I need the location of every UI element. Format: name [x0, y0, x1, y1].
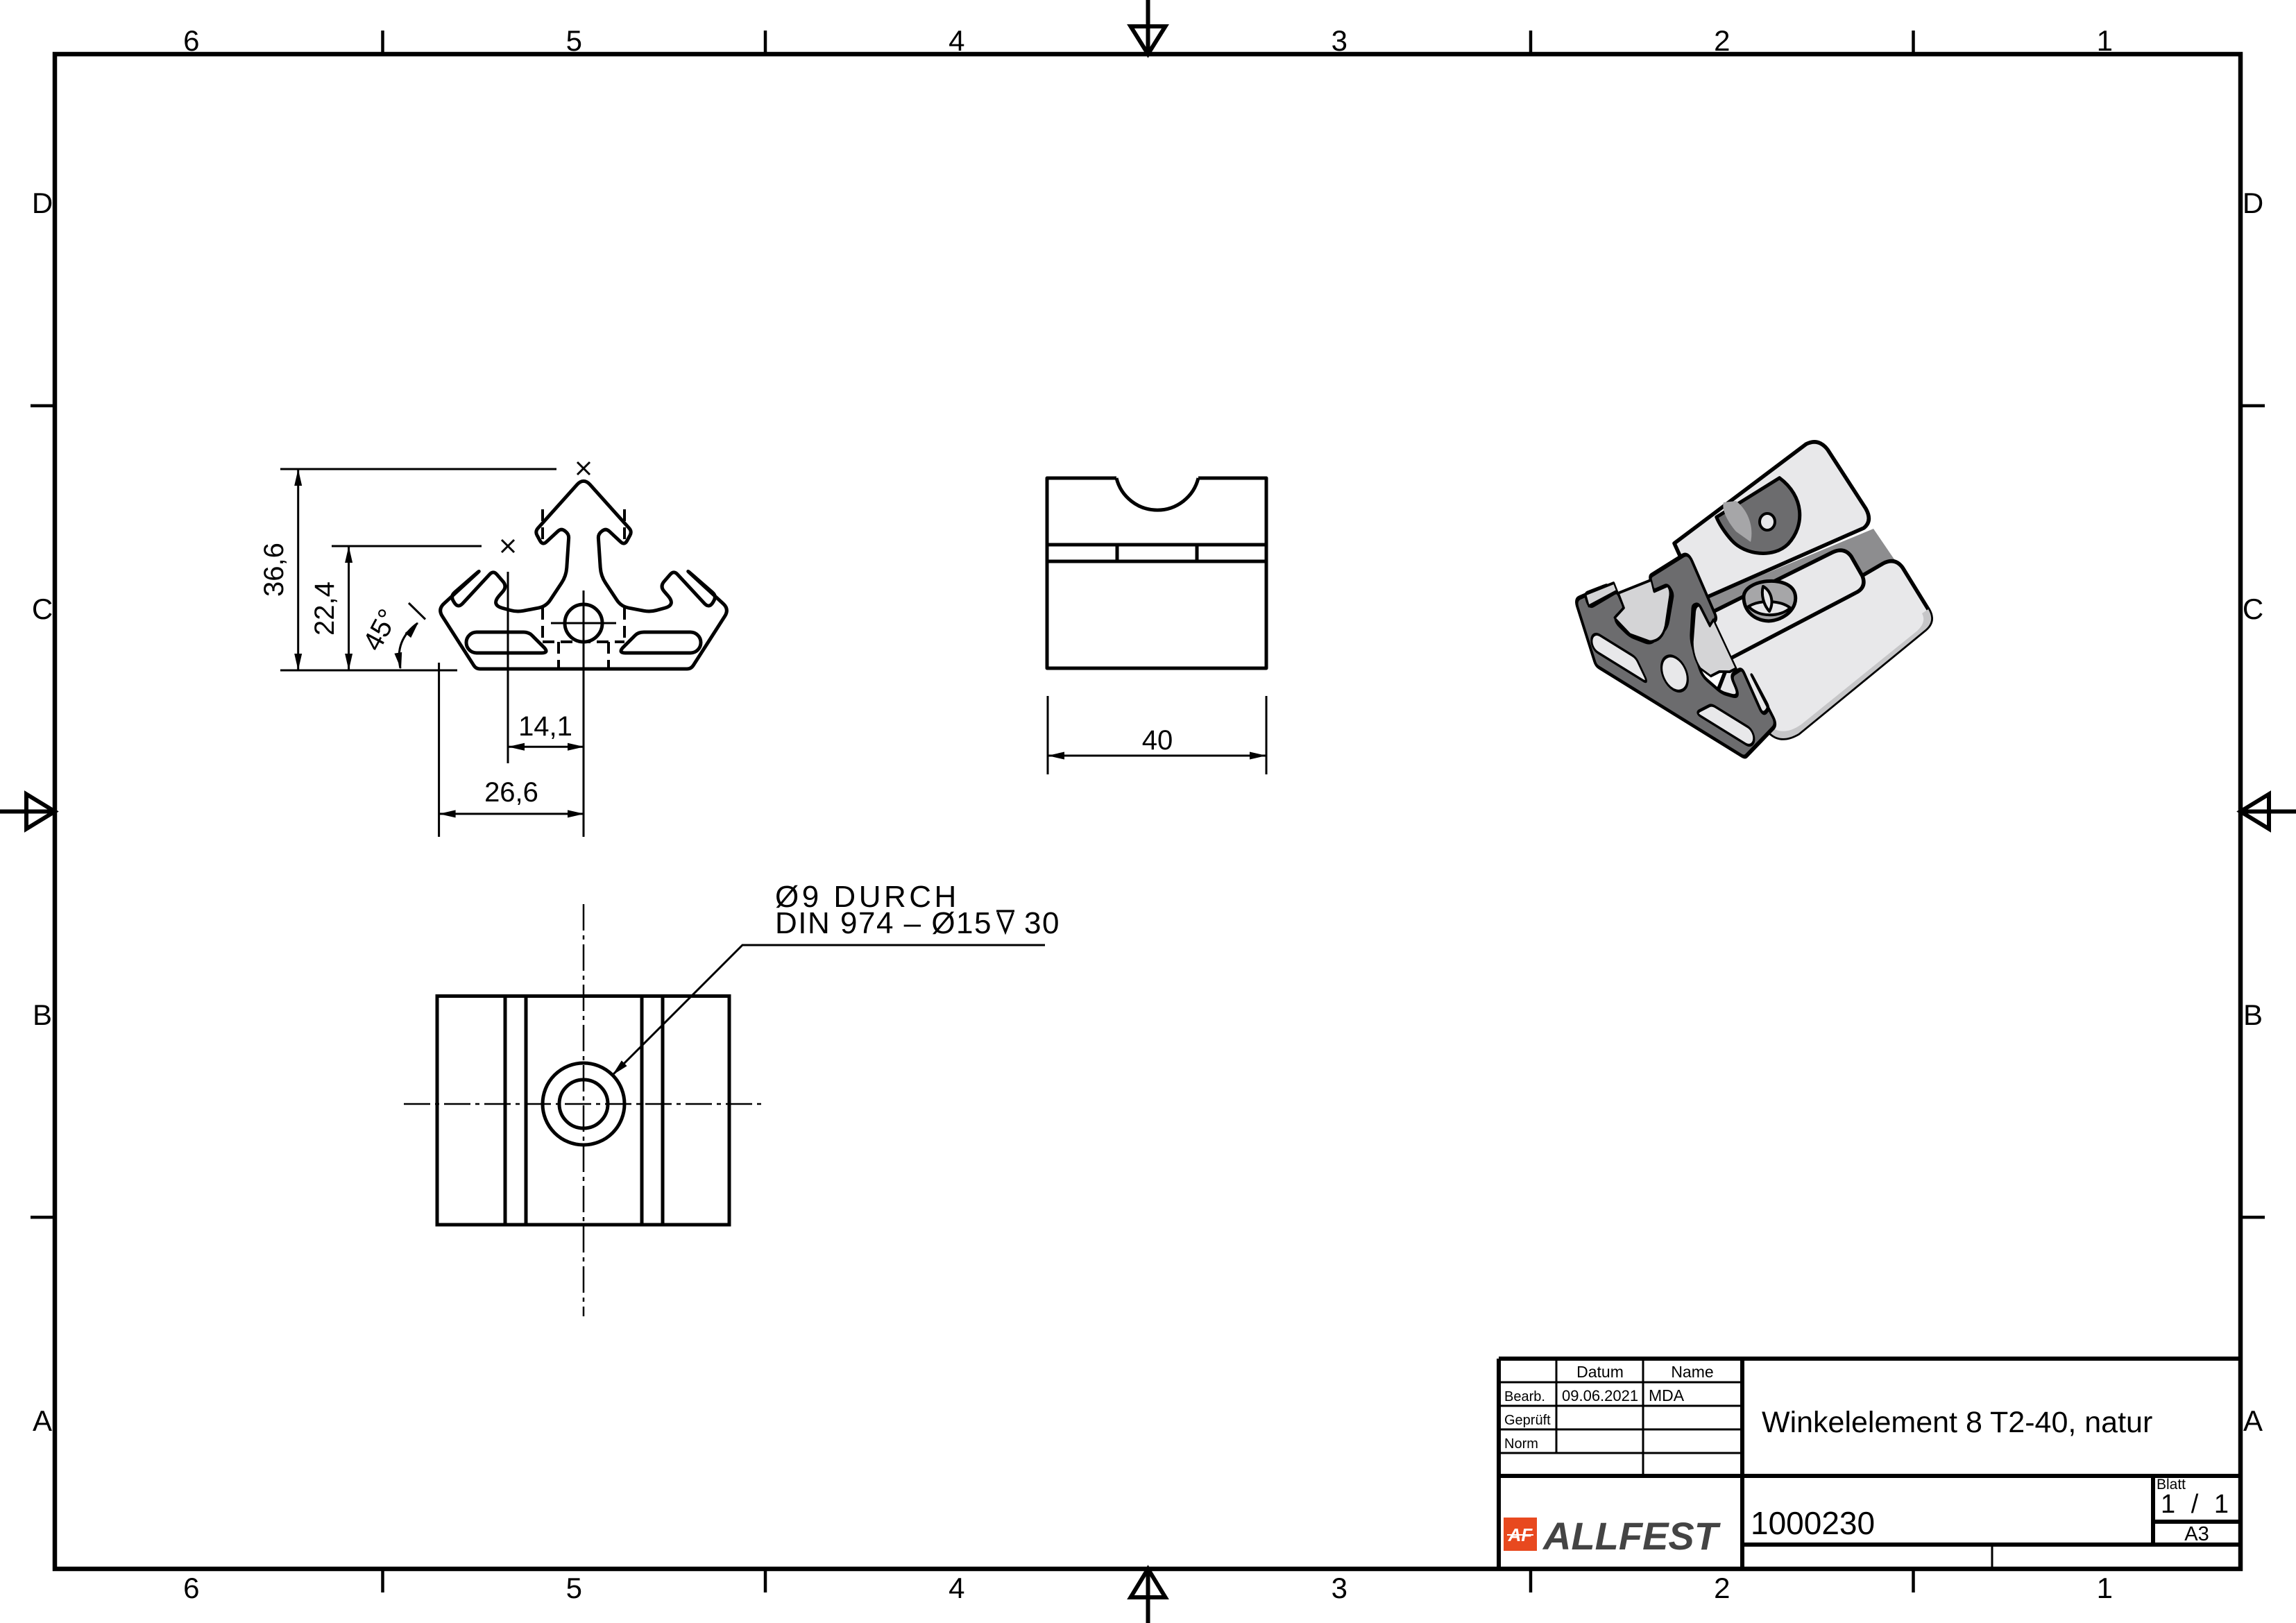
svg-text:A3: A3 — [2184, 1523, 2209, 1545]
svg-text:Winkelelement 8 T2-40, natur: Winkelelement 8 T2-40, natur — [1762, 1406, 2152, 1439]
svg-text:A: A — [2243, 1404, 2263, 1437]
svg-text:40: 40 — [1142, 725, 1173, 756]
svg-text:MDA: MDA — [1649, 1386, 1685, 1404]
svg-text:22,4: 22,4 — [309, 581, 340, 636]
svg-text:14,1: 14,1 — [518, 711, 572, 742]
svg-text:D: D — [2243, 187, 2263, 219]
svg-text:36,6: 36,6 — [259, 543, 289, 597]
svg-text:2: 2 — [1714, 1572, 1730, 1604]
svg-text:ALLFEST: ALLFEST — [1542, 1514, 1721, 1558]
svg-text:6: 6 — [183, 24, 199, 57]
svg-text:Name: Name — [1671, 1363, 1713, 1381]
svg-text:3: 3 — [1332, 24, 1347, 57]
svg-text:6: 6 — [183, 1572, 199, 1604]
svg-text:45°: 45° — [357, 604, 404, 656]
svg-text:Datum: Datum — [1576, 1363, 1624, 1381]
svg-text:Bearb.: Bearb. — [1504, 1389, 1545, 1404]
svg-text:C: C — [32, 593, 53, 625]
svg-text:D: D — [32, 187, 53, 219]
svg-text:2: 2 — [1714, 24, 1730, 57]
svg-text:1000230: 1000230 — [1751, 1505, 1875, 1541]
svg-text:B: B — [33, 999, 52, 1031]
svg-text:5: 5 — [566, 1572, 582, 1604]
svg-text:4: 4 — [949, 24, 964, 57]
svg-text:30: 30 — [1024, 906, 1060, 940]
svg-text:1: 1 — [2097, 24, 2113, 57]
svg-text:A: A — [33, 1404, 52, 1437]
svg-text:B: B — [2243, 999, 2263, 1031]
svg-text:26,6: 26,6 — [484, 777, 538, 808]
svg-text:DIN 974 – Ø15: DIN 974 – Ø15 — [775, 906, 992, 940]
svg-text:Geprüft: Geprüft — [1504, 1413, 1551, 1428]
svg-text:4: 4 — [949, 1572, 964, 1604]
svg-text:Norm: Norm — [1504, 1436, 1538, 1452]
svg-text:C: C — [2243, 593, 2263, 625]
svg-text:1 / 1: 1 / 1 — [2161, 1490, 2233, 1519]
svg-text:1: 1 — [2097, 1572, 2113, 1604]
svg-text:3: 3 — [1332, 1572, 1347, 1604]
svg-text:09.06.2021: 09.06.2021 — [1562, 1387, 1638, 1404]
svg-text:5: 5 — [566, 24, 582, 57]
